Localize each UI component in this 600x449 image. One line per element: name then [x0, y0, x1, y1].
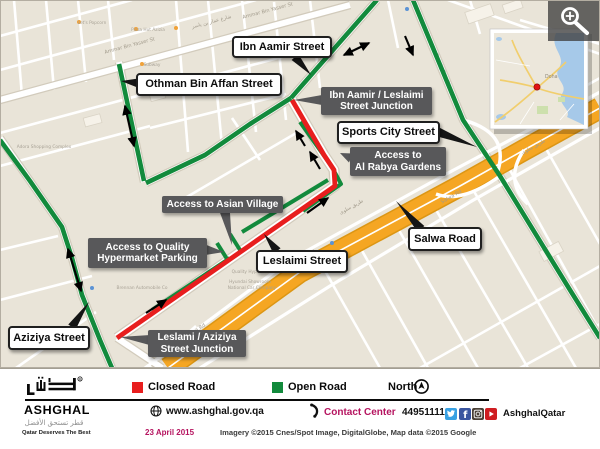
road-closure-notice: Ammar Bin Yasser Stشارع عمار بن ياسرAmma…: [0, 0, 600, 449]
open-road-swatch: [272, 382, 283, 393]
svg-text:Brennan Automobile Co: Brennan Automobile Co: [117, 285, 168, 291]
twitter-icon[interactable]: [445, 408, 457, 420]
brand-tagline: Qatar Deserves The Best: [22, 430, 88, 436]
zoom-button[interactable]: [548, 0, 600, 41]
facebook-icon[interactable]: f: [459, 408, 471, 420]
map-credits: Imagery ©2015 Cnes/Spot Image, DigitalGl…: [220, 428, 476, 437]
legend-bar: R Closed Road Open Road North: [0, 368, 600, 401]
map-canvas: Ammar Bin Yasser Stشارع عمار بن ياسرAmma…: [0, 0, 600, 368]
inset-city-label: Doha: [545, 74, 558, 80]
svg-text:Hyundai Showroom: Hyundai Showroom: [229, 279, 271, 285]
contact-center-label: Contact Center: [324, 407, 396, 418]
svg-text:Quality Hypermarket: Quality Hypermarket: [232, 269, 277, 275]
social-handle: AshghalQatar: [503, 408, 565, 419]
website-link[interactable]: www.ashghal.gov.qa: [166, 406, 264, 417]
svg-text:Pizza Hut Azizia: Pizza Hut Azizia: [131, 27, 165, 33]
brand-wordmark: ASHGHAL: [24, 403, 90, 416]
closed-road-swatch: [132, 382, 143, 393]
contact-number: 44951111: [402, 407, 445, 418]
date-label: 23 April 2015: [145, 428, 194, 437]
north-compass-icon: [413, 378, 430, 395]
svg-text:National Car Company: National Car Company: [228, 285, 277, 291]
ashghal-kufic-logo: R: [26, 373, 86, 399]
location-marker-dot: [534, 84, 540, 90]
globe-icon: [150, 405, 162, 417]
instagram-icon[interactable]: [472, 408, 484, 420]
inset-overview-map: Doha: [490, 29, 592, 134]
footer: ASHGHAL قطر تستحق الأفضل Qatar Deserves …: [0, 402, 600, 449]
svg-text:Subway: Subway: [144, 62, 161, 68]
youtube-icon[interactable]: [485, 408, 497, 420]
svg-text:Let's Popcorn: Let's Popcorn: [78, 20, 107, 26]
phone-icon: [308, 403, 321, 418]
open-road-label: Open Road: [288, 381, 347, 393]
brand-arabic-tagline: قطر تستحق الأفضل: [22, 419, 86, 427]
svg-text:Adora Shopping Complex: Adora Shopping Complex: [17, 144, 72, 150]
closed-road-label: Closed Road: [148, 381, 215, 393]
